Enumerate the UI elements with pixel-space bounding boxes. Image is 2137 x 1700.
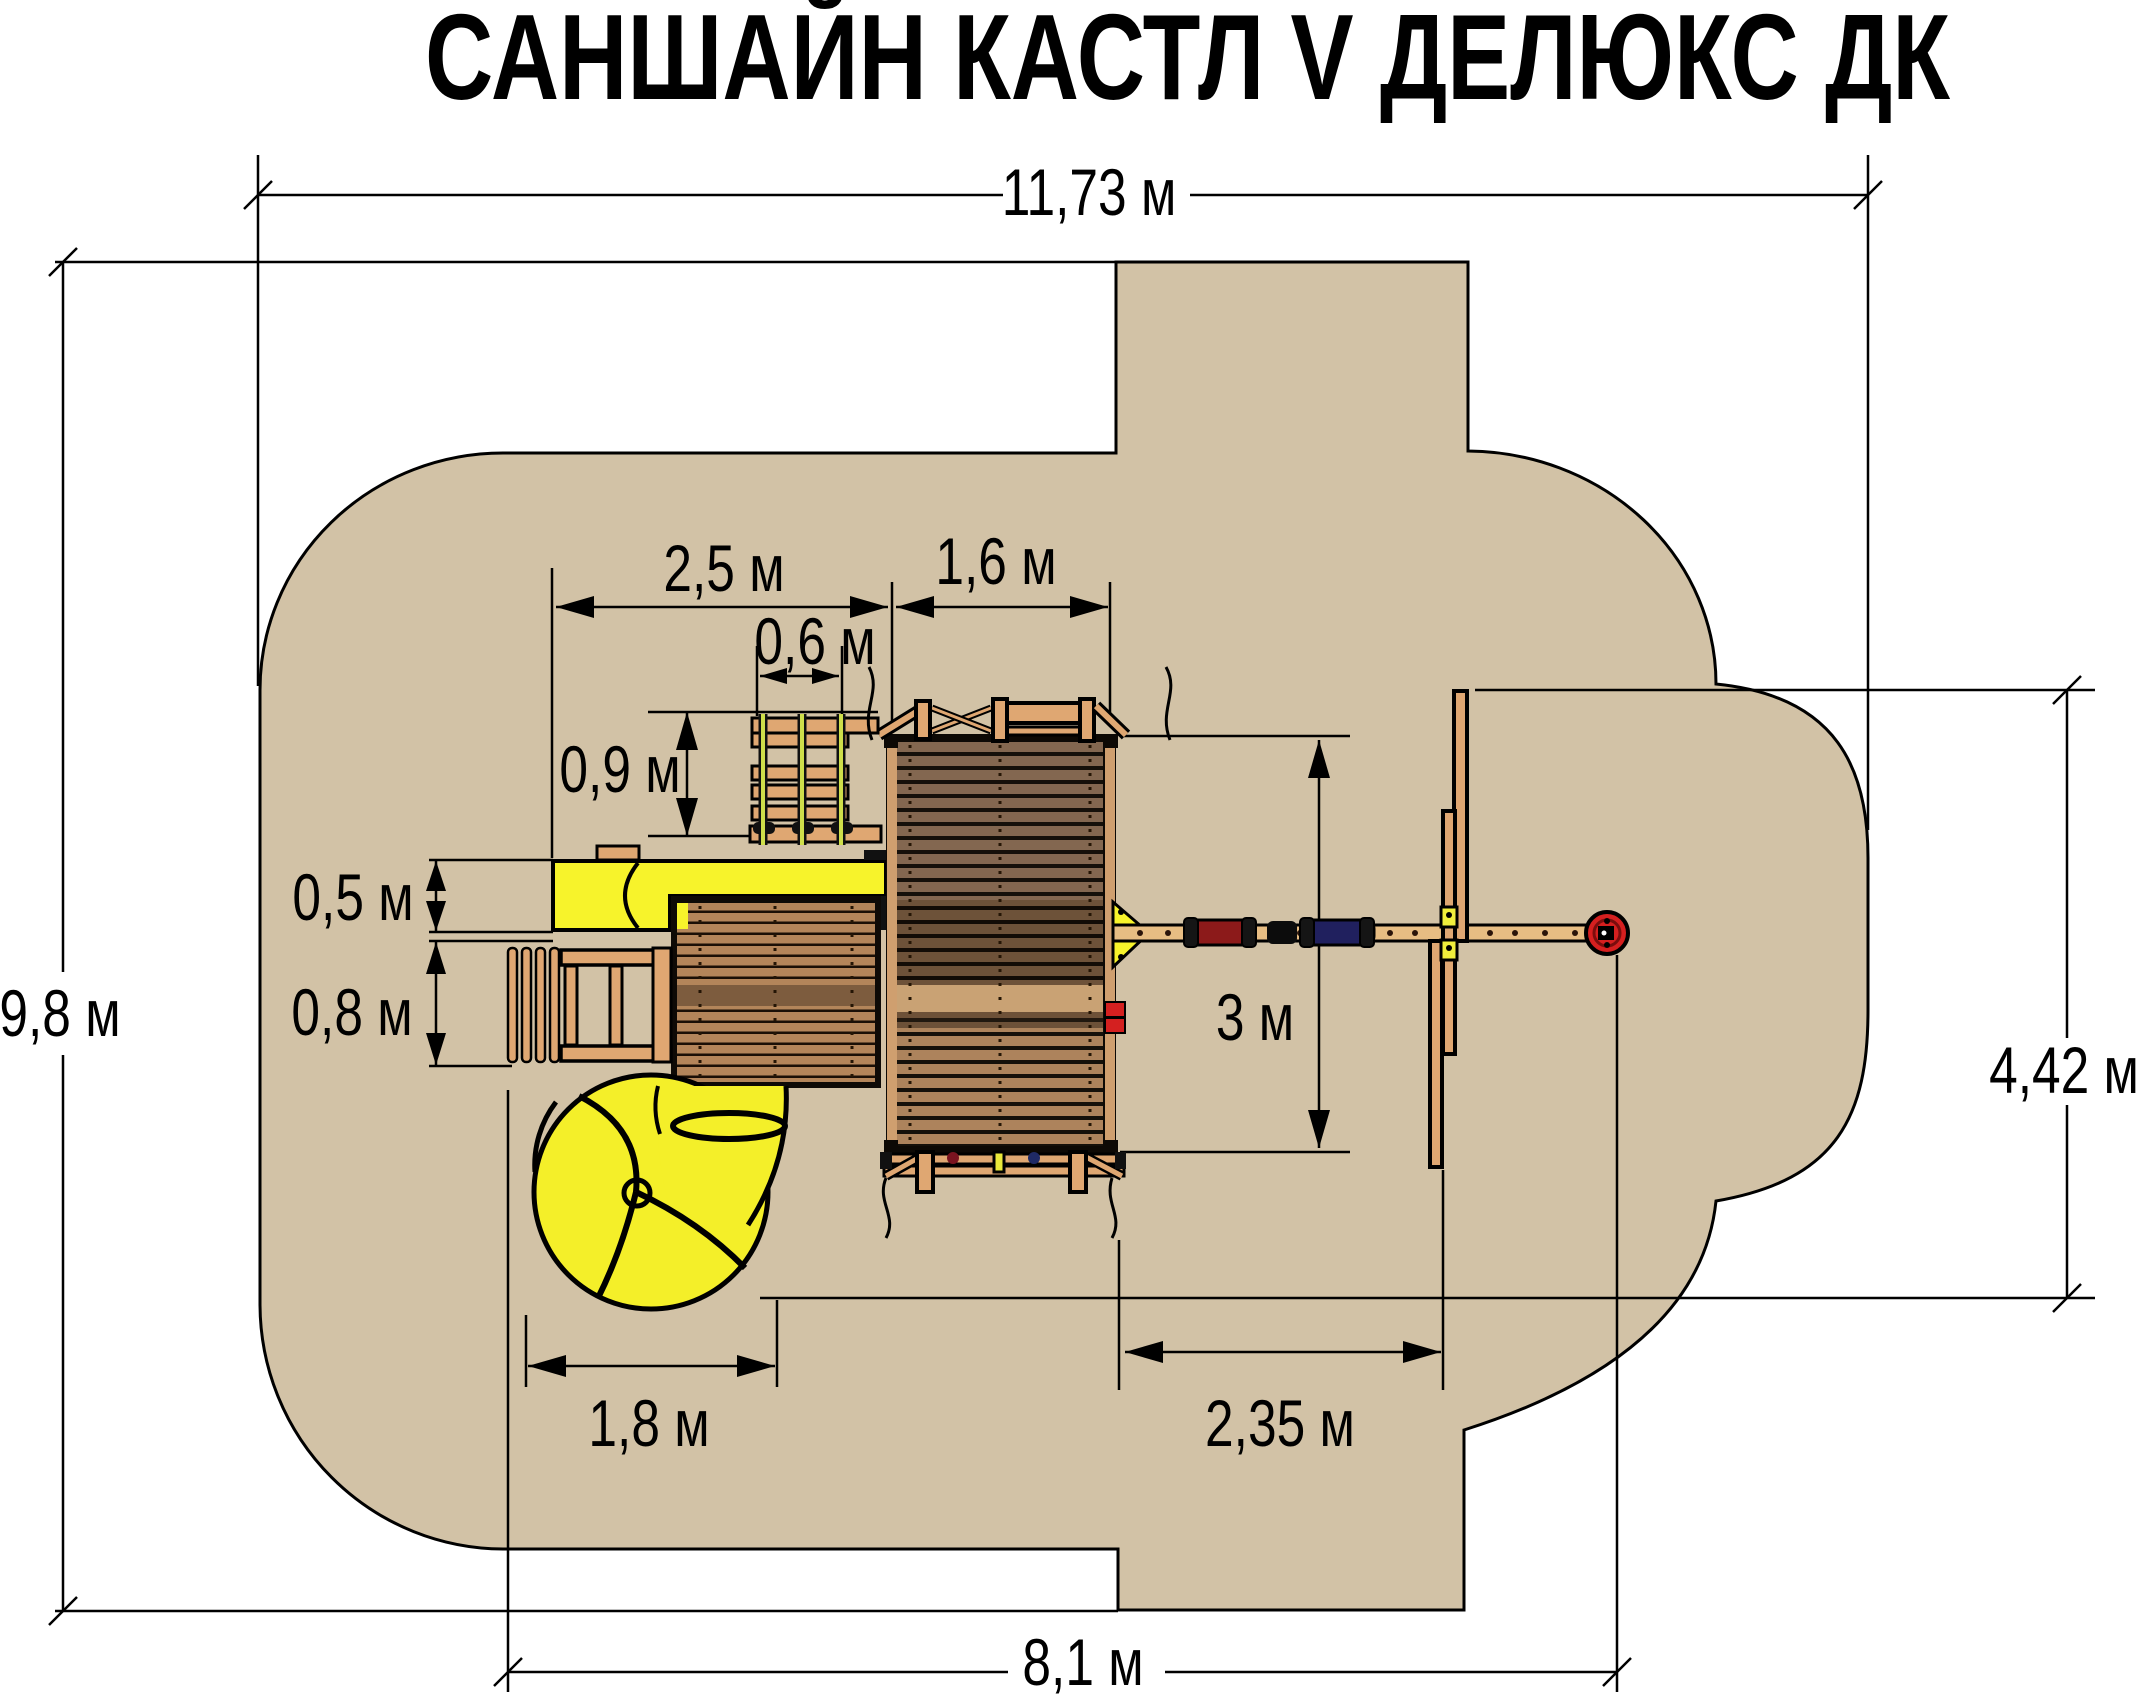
svg-text:8,1 м: 8,1 м <box>1022 1625 1143 1700</box>
svg-text:1,8 м: 1,8 м <box>588 1386 709 1461</box>
svg-text:9,8 м: 9,8 м <box>0 976 121 1051</box>
svg-text:2,5 м: 2,5 м <box>663 531 784 606</box>
svg-text:САНШАЙН КАСТЛ V ДЕЛЮКС ДК: САНШАЙН КАСТЛ V ДЕЛЮКС ДК <box>425 0 1950 125</box>
svg-text:0,9 м: 0,9 м <box>559 732 680 807</box>
svg-text:0,5 м: 0,5 м <box>292 860 413 935</box>
svg-text:1,6 м: 1,6 м <box>935 524 1056 599</box>
svg-text:11,73 м: 11,73 м <box>1002 155 1177 230</box>
svg-text:2,35 м: 2,35 м <box>1205 1386 1355 1461</box>
svg-text:0,6 м: 0,6 м <box>754 604 875 679</box>
svg-text:3 м: 3 м <box>1216 980 1294 1055</box>
svg-text:0,8 м: 0,8 м <box>291 975 412 1050</box>
svg-text:4,42 м: 4,42 м <box>1989 1033 2137 1108</box>
